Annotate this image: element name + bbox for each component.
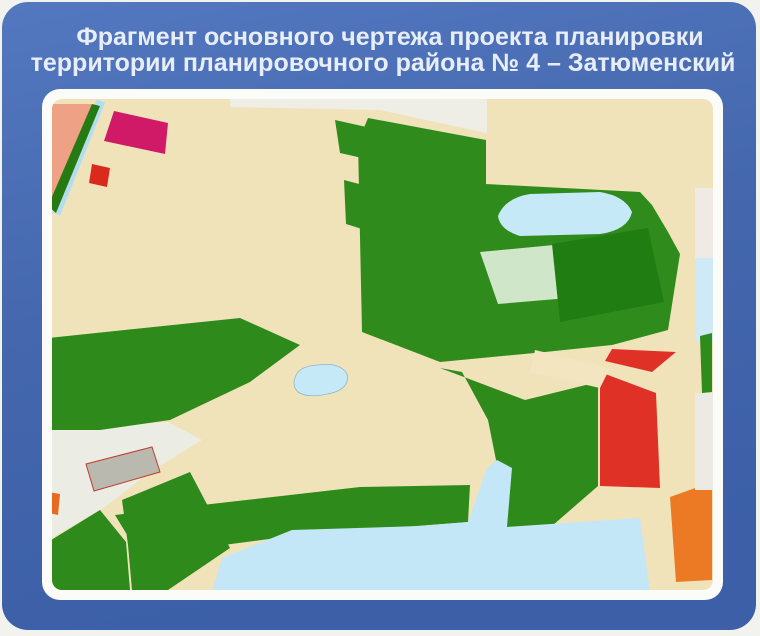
svg-text:территории планировочного райо: территории планировочного района № 4 – З… [31,49,736,77]
svg-text:Фрагмент основного чертежа про: Фрагмент основного чертежа проекта плани… [76,23,703,51]
